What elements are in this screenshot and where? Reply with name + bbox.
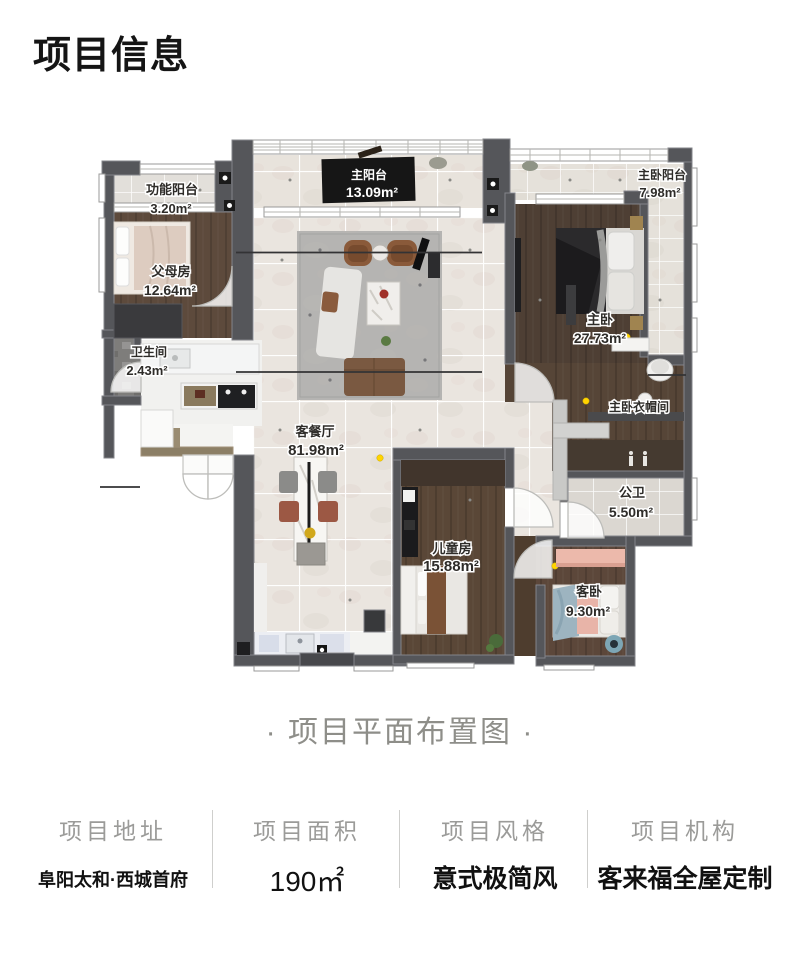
svg-text:9.30m²: 9.30m² bbox=[566, 603, 611, 619]
svg-text:公卫: 公卫 bbox=[619, 485, 645, 500]
svg-text:7.98m²: 7.98m² bbox=[639, 185, 681, 200]
svg-text:客卧: 客卧 bbox=[576, 584, 602, 599]
svg-text:主卧阳台: 主卧阳台 bbox=[638, 167, 686, 182]
svg-text:卫生间: 卫生间 bbox=[131, 344, 167, 359]
svg-text:15.88m²: 15.88m² bbox=[423, 558, 479, 575]
svg-text:儿童房: 儿童房 bbox=[431, 541, 471, 556]
svg-text:主卧: 主卧 bbox=[587, 312, 613, 327]
svg-text:12.64m²: 12.64m² bbox=[144, 282, 196, 298]
svg-text:客餐厅: 客餐厅 bbox=[295, 424, 334, 439]
svg-text:主卧衣帽间: 主卧衣帽间 bbox=[609, 399, 669, 414]
svg-text:27.73m²: 27.73m² bbox=[574, 330, 626, 346]
svg-text:81.98m²: 81.98m² bbox=[288, 442, 344, 459]
svg-text:功能阳台: 功能阳台 bbox=[146, 182, 198, 197]
svg-text:3.20m²: 3.20m² bbox=[150, 201, 192, 216]
svg-text:主阳台: 主阳台 bbox=[351, 167, 387, 182]
svg-text:父母房: 父母房 bbox=[150, 264, 190, 279]
svg-text:2.43m²: 2.43m² bbox=[126, 363, 168, 378]
svg-text:5.50m²: 5.50m² bbox=[609, 504, 654, 520]
svg-text:13.09m²: 13.09m² bbox=[346, 184, 398, 200]
